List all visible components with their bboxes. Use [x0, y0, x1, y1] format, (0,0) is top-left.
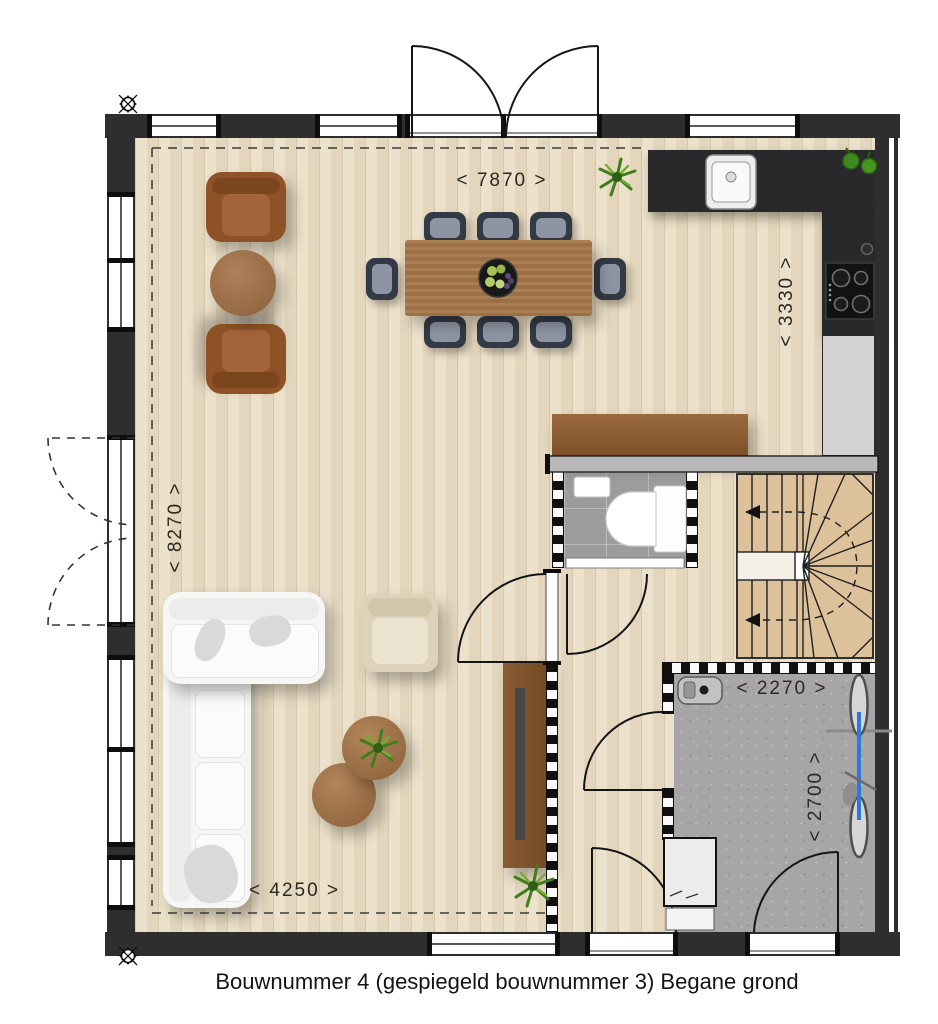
dimension-storage-depth: < 2700 > [805, 726, 827, 866]
chair-seat [536, 218, 566, 238]
chair-seat [483, 322, 513, 342]
chair-seat [430, 218, 460, 238]
armchair-back [212, 372, 280, 388]
dining-chair [366, 258, 398, 300]
storage-wall-top [662, 662, 876, 674]
sofa-cushion [195, 690, 245, 758]
storage-wall-left-lower [662, 788, 674, 840]
chair-seat [372, 264, 392, 294]
sofa-cushion [171, 624, 319, 678]
leather-armchair [206, 324, 286, 394]
toilet-floor [564, 472, 686, 568]
chair-seat [430, 322, 460, 342]
chair-seat [483, 218, 513, 238]
armchair-seat [222, 330, 270, 372]
sofa-cushion [195, 762, 245, 830]
leather-armchair [206, 172, 286, 242]
fauteuil [362, 594, 438, 672]
round-side-table [210, 250, 276, 316]
hall-wall [546, 662, 558, 932]
armchair-back [212, 178, 280, 194]
fauteuil-seat [372, 618, 428, 664]
tv-screen [515, 688, 525, 840]
dining-chair [424, 316, 466, 348]
fauteuil-back [368, 598, 432, 616]
chair-seat [536, 322, 566, 342]
armchair-seat [222, 194, 270, 236]
plan-caption: Bouwnummer 4 (gespiegeld bouwnummer 3) B… [107, 969, 907, 995]
dining-chair [530, 316, 572, 348]
toilet-wall-right [686, 462, 698, 568]
survey-marker-icon [119, 947, 137, 965]
kitchen-counter-right [822, 212, 875, 335]
tv-cabinet [503, 662, 547, 868]
dimension-top-width: < 7870 > [402, 170, 602, 192]
optional-door-arcs-dashed [48, 438, 135, 625]
toilet-wall-left [552, 462, 564, 568]
survey-marker-icon [119, 95, 137, 113]
coffee-table [342, 716, 406, 780]
dimension-bottom-width: < 4250 > [249, 880, 340, 902]
dining-chair [594, 258, 626, 300]
sofa-back [169, 598, 319, 620]
sideboard [552, 414, 748, 458]
dimension-left-depth: < 8270 > [165, 457, 187, 597]
sofa-chaise [163, 592, 325, 684]
storage-floor [674, 674, 875, 932]
dining-chair [477, 316, 519, 348]
dimension-storage-width: < 2270 > [702, 678, 862, 700]
kitchen-cabinet [822, 335, 875, 456]
storage-wall-left-upper [662, 674, 674, 714]
dimension-kitchen-depth: < 3330 > [776, 231, 798, 371]
chair-seat [600, 264, 620, 294]
floor-plan: < 7870 > < 3330 > < 8270 > < 4250 > < 22… [0, 0, 938, 1024]
kitchen-counter-top [648, 150, 875, 212]
dining-table [405, 240, 592, 316]
